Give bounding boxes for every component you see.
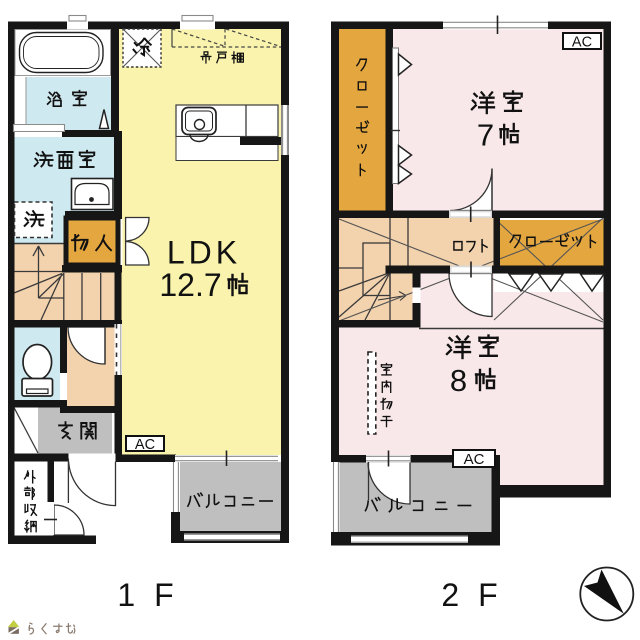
svg-text:1 F: 1 F (117, 577, 178, 613)
svg-text:AC: AC (464, 451, 485, 468)
svg-text:8: 8 (450, 363, 467, 398)
svg-text:12.7: 12.7 (159, 267, 221, 303)
svg-text:LDK: LDK (167, 235, 241, 271)
svg-text:AC: AC (135, 437, 155, 453)
svg-text:2 F: 2 F (441, 577, 502, 613)
svg-text:AC: AC (572, 34, 592, 50)
svg-text:7: 7 (477, 118, 494, 153)
